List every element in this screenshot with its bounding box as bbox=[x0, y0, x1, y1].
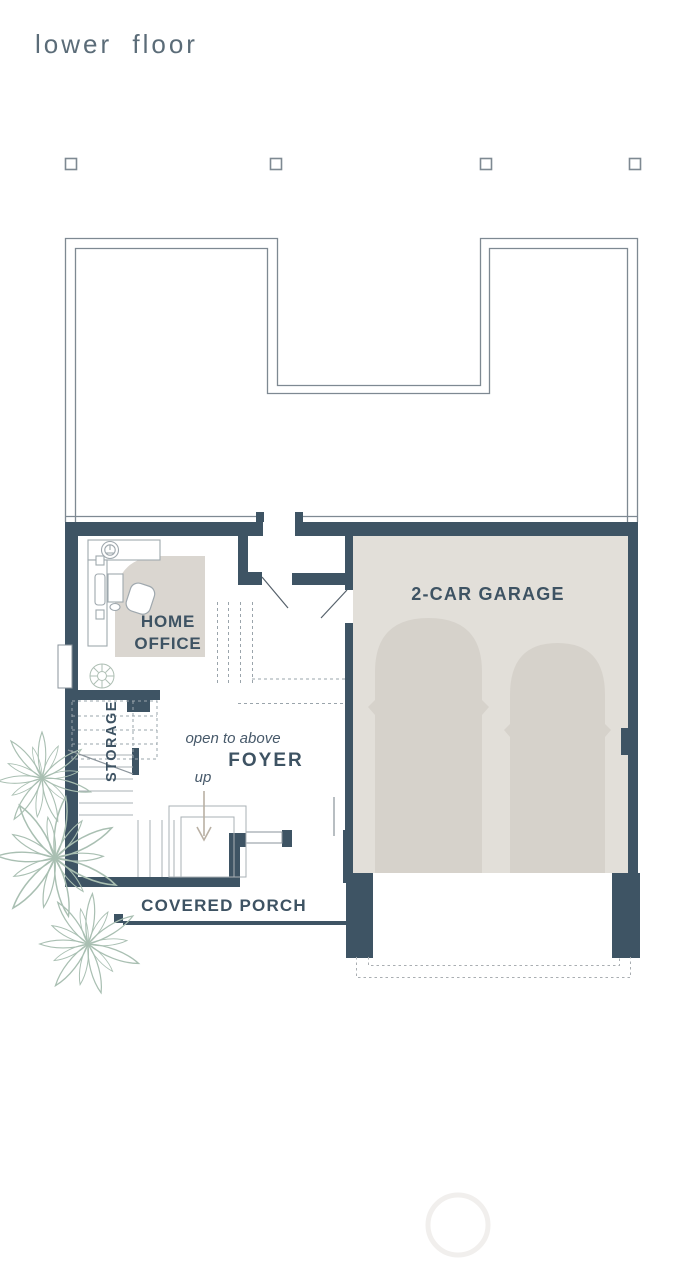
plant-cluster-top bbox=[0, 732, 92, 823]
covered-porch-label: COVERED PORCH bbox=[124, 896, 324, 916]
entry-window bbox=[246, 832, 282, 843]
home-office-label-line1: HOME bbox=[118, 611, 218, 633]
car-right bbox=[504, 643, 611, 873]
stair-up-label: up bbox=[186, 769, 220, 786]
office-window bbox=[58, 645, 72, 688]
upper-floor-outline bbox=[65, 239, 638, 523]
deck-posts bbox=[66, 159, 641, 170]
driveway-dashes bbox=[357, 957, 631, 978]
open-to-above-note: open to above bbox=[176, 730, 290, 747]
foyer-label: FOYER bbox=[214, 750, 318, 772]
home-office-label: HOME OFFICE bbox=[118, 611, 218, 655]
open-above-dashes bbox=[218, 602, 346, 704]
car-left bbox=[368, 618, 489, 873]
stair-up-arrow bbox=[197, 791, 211, 840]
floor-plan: lower floor 2-CAR GARAGE HOME OFFICE STO… bbox=[0, 0, 700, 1270]
plant-cluster-middle bbox=[0, 796, 118, 917]
page-title: lower floor bbox=[35, 29, 198, 60]
garage-door-swing bbox=[321, 590, 347, 618]
entry-step-inner bbox=[181, 817, 234, 877]
office-plant-icon bbox=[90, 664, 114, 688]
floor-plan-drawing bbox=[0, 0, 700, 1270]
office-door-swing bbox=[262, 577, 288, 608]
home-office-label-line2: OFFICE bbox=[118, 633, 218, 655]
garage-label: 2-CAR GARAGE bbox=[388, 584, 588, 605]
watermark-circle bbox=[428, 1195, 488, 1255]
storage-label: STORAGE bbox=[104, 697, 120, 785]
